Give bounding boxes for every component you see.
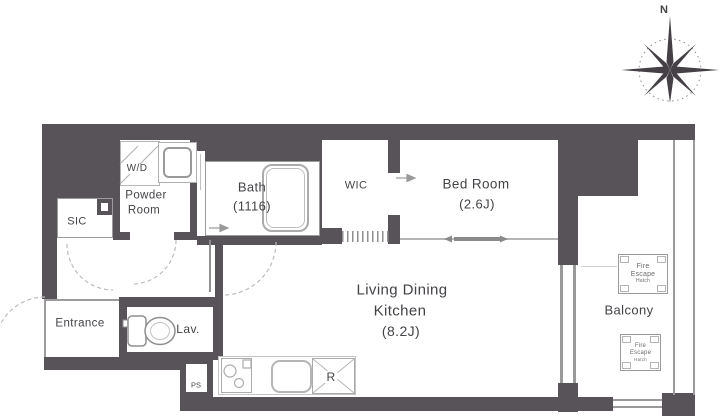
ldk-door-leaf xyxy=(209,240,211,292)
room-label-ldk-line1: Living Dining xyxy=(356,283,447,298)
stove xyxy=(221,358,252,393)
bath-sliding-door-line xyxy=(200,154,201,190)
hatch-corner-mark xyxy=(622,362,631,369)
wic-door-arrow xyxy=(396,175,415,182)
room-label-ldk-size: (8.2J) xyxy=(382,324,420,338)
compass-north-label: N xyxy=(660,4,668,16)
wall-balcony-block xyxy=(578,140,638,196)
sic-door-arc xyxy=(67,244,113,290)
room-label-bath: Bath xyxy=(238,181,266,194)
wall-left xyxy=(42,140,57,299)
hatch-corner-mark xyxy=(650,336,659,343)
room-label-ps: PS xyxy=(191,381,201,389)
floor-plan: Fire Escape Hatch Fire Escape Hatch xyxy=(0,0,720,416)
room-label-bedroom-size: (2.6J) xyxy=(459,198,495,211)
fire-escape-text: Hatch xyxy=(634,357,647,362)
entrance-step-line xyxy=(44,299,119,301)
room-label-wd: W/D xyxy=(126,164,149,174)
front-door-arc xyxy=(0,297,45,347)
hatch-corner-mark xyxy=(620,285,629,292)
hatch-corner-mark xyxy=(620,256,629,263)
powder-door-arc xyxy=(132,240,176,284)
balcony-window-line-right xyxy=(573,265,576,383)
hatch-corner-mark xyxy=(657,285,666,292)
refrigerator-label: R xyxy=(324,371,337,383)
wall-ldk-bottom xyxy=(180,397,613,411)
fire-escape-text: Fire xyxy=(637,263,650,271)
fire-escape-hatch-1: Fire Escape Hatch xyxy=(618,254,668,294)
room-label-ldk-line2: Kitchen xyxy=(374,304,427,319)
hatch-corner-mark xyxy=(657,256,666,263)
room-label-lav: Lav. xyxy=(176,323,199,335)
room-label-entrance: Entrance xyxy=(55,318,104,330)
wall-powder-left xyxy=(113,140,120,240)
room-label-bath-size: (1116) xyxy=(233,200,271,213)
fire-escape-text: Hatch xyxy=(636,279,650,285)
wall-topleft-block xyxy=(57,140,113,200)
lav-interior xyxy=(127,307,213,352)
balcony-sill-line xyxy=(581,266,617,267)
balcony-railing xyxy=(673,140,695,395)
bath-door-opening xyxy=(197,151,205,193)
balcony-bottom-rail xyxy=(613,399,662,408)
ldk-door-arc xyxy=(223,242,276,295)
fire-escape-text: Escape xyxy=(630,350,651,357)
wall-top xyxy=(42,124,695,140)
entrance-left-line xyxy=(44,299,46,357)
fire-escape-text: Fire xyxy=(635,343,646,350)
fire-escape-hatch-2: Fire Escape Hatch xyxy=(620,334,661,371)
compass-rose: N xyxy=(621,4,719,103)
room-label-bedroom: Bed Room xyxy=(443,177,510,191)
sliding-partition-panel xyxy=(454,237,502,241)
sic-column xyxy=(97,199,112,215)
wall-bath-top xyxy=(197,140,322,161)
kitchen-sink xyxy=(271,360,312,393)
balcony-window-line-left xyxy=(560,265,563,383)
room-label-powder-line1: Powder xyxy=(125,190,166,202)
room-label-powder-line2: Room xyxy=(128,205,160,217)
powder-door-opening xyxy=(130,232,174,240)
washer-icon xyxy=(163,147,192,178)
hatch-corner-mark xyxy=(622,336,631,343)
hatch-corner-mark xyxy=(650,362,659,369)
room-label-balcony: Balcony xyxy=(604,304,653,317)
bathtub-inner xyxy=(266,168,305,228)
wall-bedroom-right xyxy=(558,140,578,265)
wall-hall-ldk xyxy=(215,236,223,297)
wic-folding-door xyxy=(342,231,392,242)
wall-balcony-corner xyxy=(662,393,695,416)
room-label-wic: WIC xyxy=(345,181,368,192)
wall-wic-bedroom-upper xyxy=(388,140,400,173)
compass-needles xyxy=(621,16,719,103)
room-label-sic: SIC xyxy=(67,217,87,228)
